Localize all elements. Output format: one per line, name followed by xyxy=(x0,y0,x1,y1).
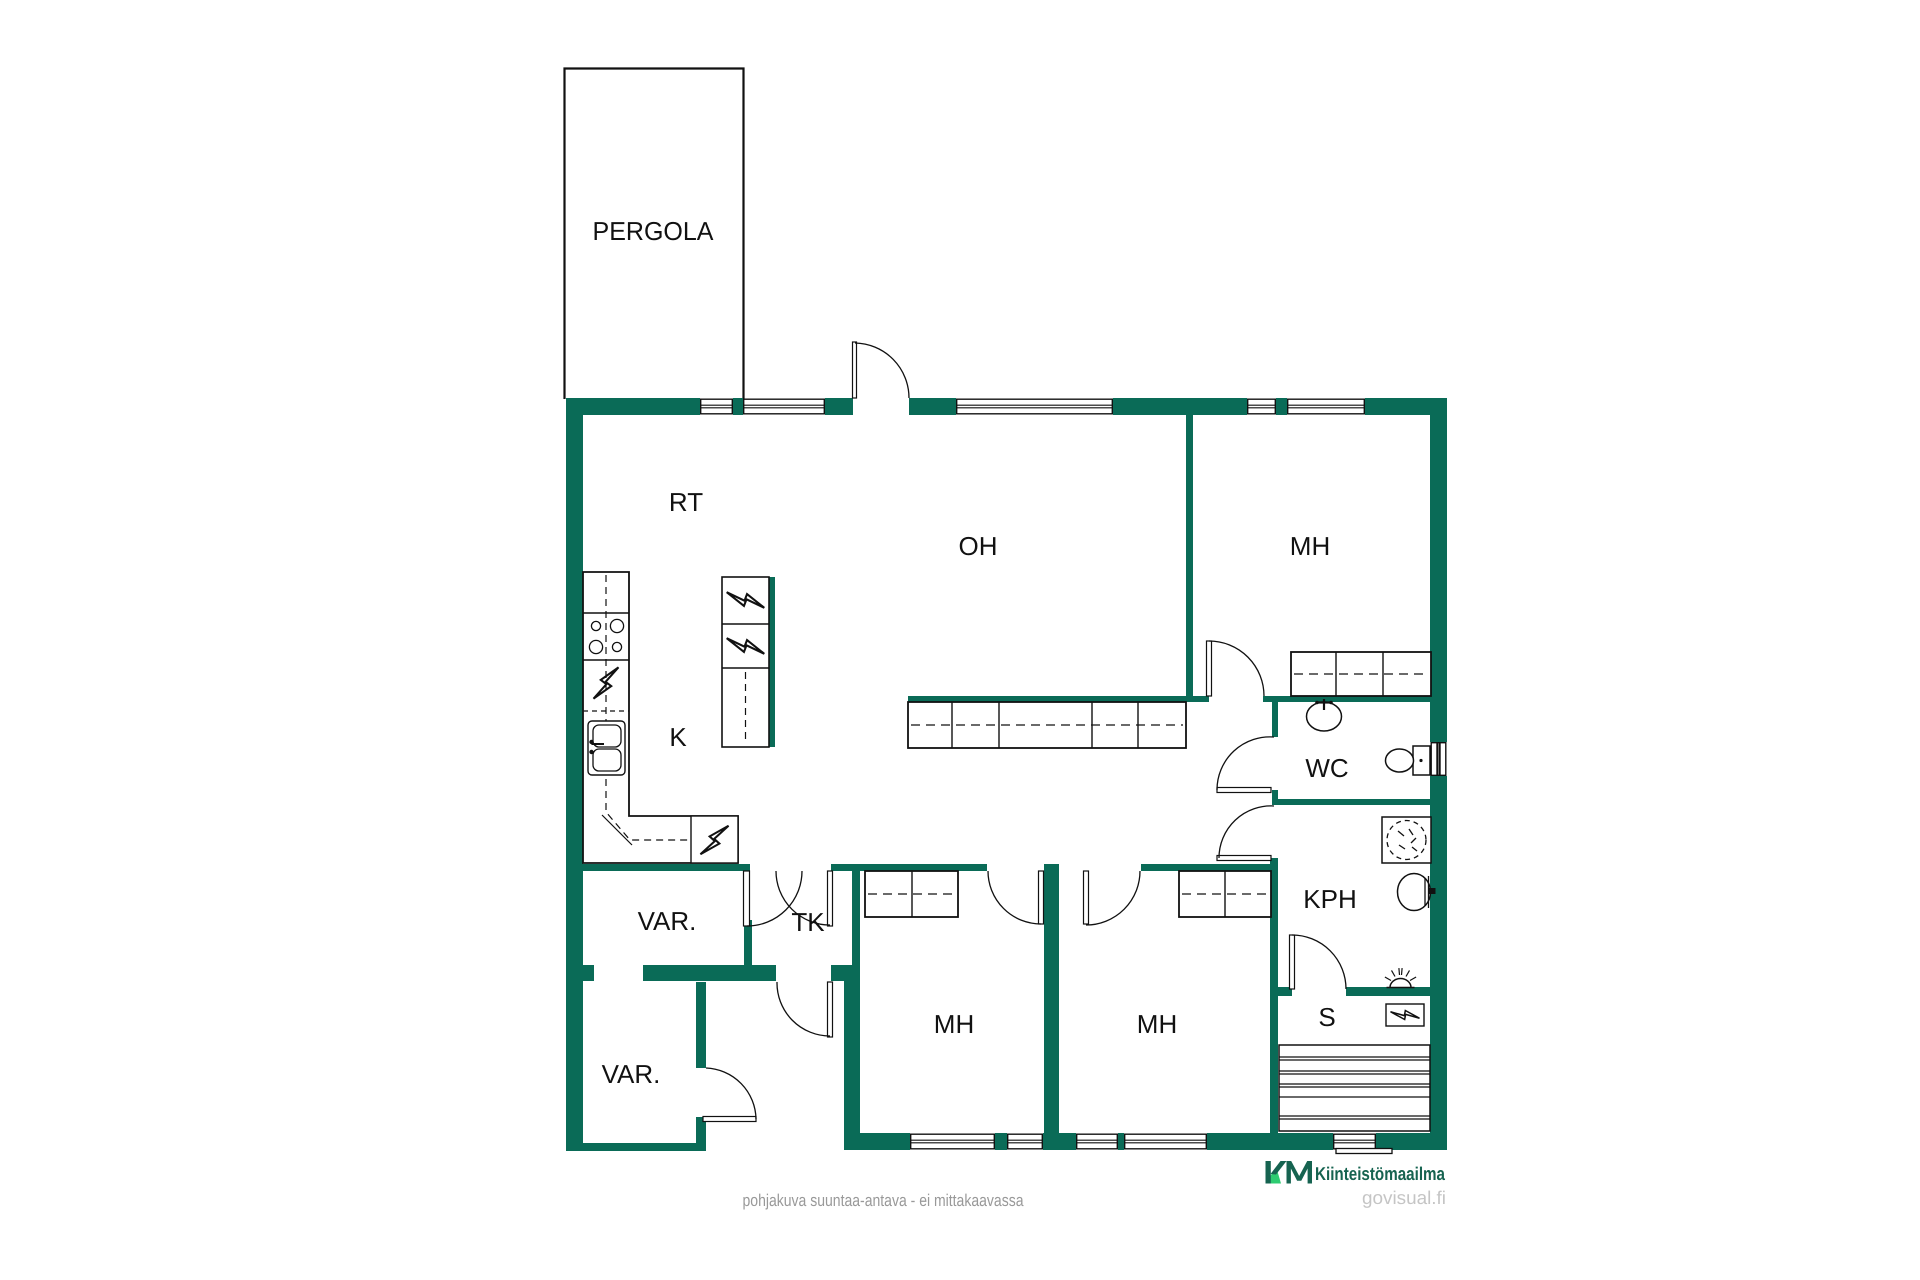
svg-text:govisual.fi: govisual.fi xyxy=(1362,1187,1446,1208)
svg-text:pohjakuva suuntaa-antava - ei: pohjakuva suuntaa-antava - ei mittakaava… xyxy=(743,1191,1024,1210)
svg-text:Kiinteistömaailma: Kiinteistömaailma xyxy=(1315,1163,1446,1184)
svg-text:VAR.: VAR. xyxy=(638,906,697,936)
svg-text:K: K xyxy=(669,722,687,752)
svg-text:VAR.: VAR. xyxy=(602,1059,661,1089)
svg-text:MH: MH xyxy=(934,1009,974,1039)
svg-text:TK: TK xyxy=(791,907,825,937)
svg-text:MH: MH xyxy=(1137,1009,1177,1039)
svg-text:MH: MH xyxy=(1290,531,1330,561)
svg-text:S: S xyxy=(1318,1002,1335,1032)
svg-text:WC: WC xyxy=(1305,753,1348,783)
svg-text:KPH: KPH xyxy=(1303,884,1356,914)
svg-text:PERGOLA: PERGOLA xyxy=(593,216,715,246)
svg-text:OH: OH xyxy=(959,531,998,561)
svg-text:RT: RT xyxy=(669,487,703,517)
